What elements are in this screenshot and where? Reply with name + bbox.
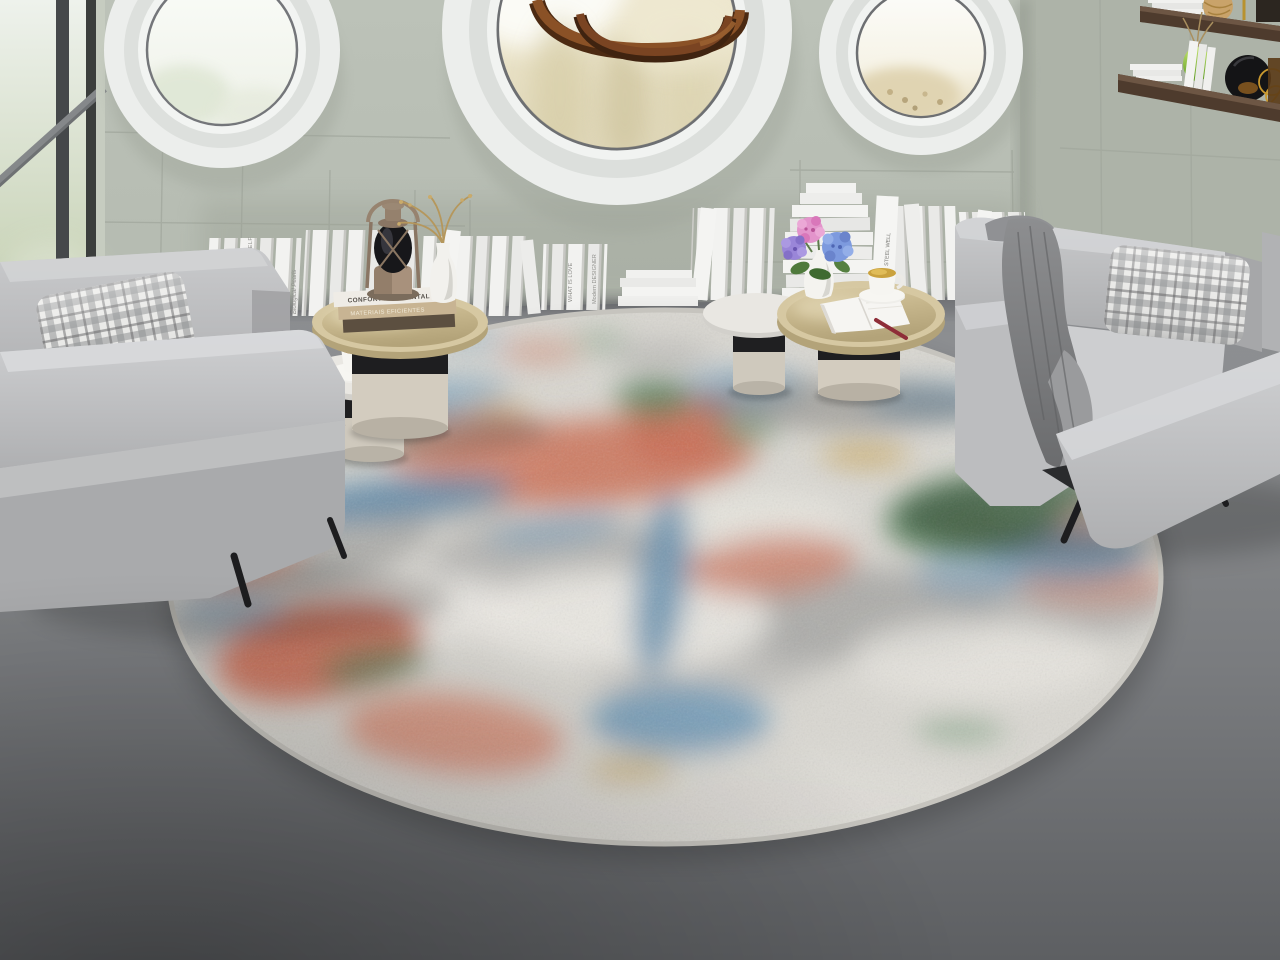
floor-vignette xyxy=(0,290,1280,960)
living-room-scene: FATALISM OF YOURSELF Biological Pearls W… xyxy=(0,0,1280,960)
hydrangea-purple xyxy=(781,235,807,260)
amber-bottle xyxy=(1268,58,1280,104)
dark-books xyxy=(1256,0,1280,22)
black-sculpture-vase xyxy=(1225,55,1271,101)
